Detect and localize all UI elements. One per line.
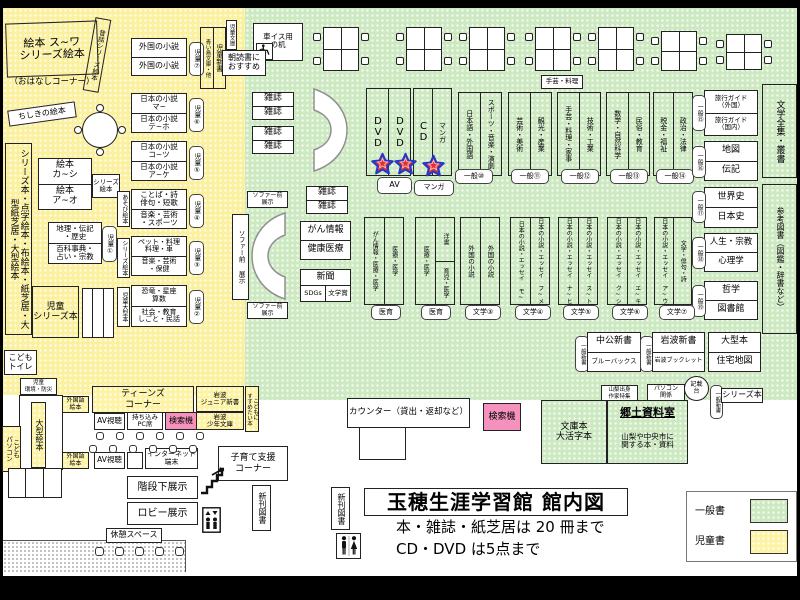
chair [573, 57, 581, 65]
shelf-label: 日本の小説・エッセイ ス~ト [578, 218, 598, 304]
shelf-label: 旅行ガイド （国内） [705, 113, 757, 136]
stool-seat [156, 432, 164, 440]
shelf-kids-japanese-fiction-ma: 日本の小説 マ~ 日本の小説 テ~ホ [131, 93, 187, 133]
shelf-japanese-foreign-language: 日本語・外国語 スポーツ・音楽・演劇 [458, 92, 502, 176]
shelf-badge-av: AV [377, 177, 412, 194]
chair [525, 57, 533, 65]
rule-books: 本・雑誌・紙芝居は 20 冊まで [396, 517, 646, 537]
shelf-label: 日本の小説・エッセイ ナ~ヒ [559, 218, 578, 304]
restroom-icon [336, 533, 361, 559]
chair [636, 33, 644, 41]
morning-reading-recommendation: 朝読書に おすすめ [222, 50, 266, 76]
chair [459, 57, 467, 65]
chair [118, 126, 126, 134]
shelf-label: 洋書 [436, 218, 455, 261]
shelf-badge-ippan-13: 一般⑬ [610, 169, 648, 184]
chair [651, 57, 659, 65]
chair [74, 126, 82, 134]
shelf-label: 健康医療 [301, 240, 350, 259]
chair [525, 33, 533, 41]
stool-seat [136, 432, 144, 440]
stool-seat [116, 432, 124, 440]
shelf-label: 税金・福祉 [654, 93, 673, 175]
chair [444, 33, 452, 41]
shelf-label: 雑誌 [253, 140, 293, 154]
shelf-badge-jido-2: 児童② [189, 290, 204, 324]
shelf-label: スポーツ・音楽・演劇 [480, 93, 502, 175]
shelf-label: 地理・伝記 ・歴史 [49, 223, 101, 243]
shelf-play-picturebooks: あそび絵本 [117, 191, 130, 227]
shelf-japanese-fiction-essay-4: 日本の小説・エッセイ モ~ 日本の小説・エッセイ フ~メ [510, 217, 550, 305]
av-viewing-seat: AV視聴 [94, 413, 125, 430]
writing-desk: 記載 台 [684, 376, 709, 401]
sofa-front-display: ソファー前 展示 [232, 214, 249, 300]
shelf-label: 数学・自然科学 [607, 93, 628, 175]
shelf-kids-pets-cooking: ペット・料理 料理・車 音楽・芸術 ・保健 [131, 236, 187, 276]
room-local-materials: 郷土資料室 山梨や中央市に 関する本・資料 [607, 400, 688, 464]
shelf-kids-dinosaur-society: 恐竜・星座 算数 社会・教育 しごと・民話 [131, 285, 187, 327]
shelf-kids-large-books: 児童大型本 [117, 287, 130, 327]
room-bunko-large-print: 文庫本 大活字本 [541, 400, 607, 464]
shelf-divider [92, 288, 93, 338]
legend-children-swatch [750, 530, 788, 554]
childcare-support-corner: 子育て支援 コーナー [218, 446, 288, 481]
chair [651, 37, 659, 45]
shelf-label: 政治・法律 [673, 93, 693, 175]
service-counter: カウンター（貸出・返却など） [347, 398, 470, 428]
shelf-label: 雑誌 [253, 106, 293, 120]
chair [96, 104, 104, 112]
chair [636, 57, 644, 65]
shelf-kids-foreign-fiction: 外国の小説 外国の小説 [131, 38, 187, 76]
shelf-label: 文学・俳句・詩 [673, 218, 692, 304]
shelf-unit [82, 288, 114, 338]
shelf-label: 恐竜・星座 算数 [132, 286, 186, 306]
shelf-maps-biography: 地図 伝記 [704, 141, 758, 181]
shelf-label: がん情報・医療・医学 [365, 218, 384, 304]
room-title: 郷土資料室 [611, 404, 684, 422]
shelf-series-picturebook-side: シリーズ 絵本 [92, 174, 120, 198]
star-marker-icon [393, 152, 418, 177]
shelf-label: 日本史 [705, 207, 757, 227]
shelf-kids-japanese-fiction-ko: 日本の小説 コ~ツ 日本の小説 ア~ケ [131, 141, 187, 181]
shelf-label: ブルーバックス [588, 352, 640, 372]
shelf-badge-ippan-14: 一般⑭ [656, 169, 694, 184]
shelf-label: 日本の小説 マ~ [132, 94, 186, 113]
stool-seat [149, 445, 157, 453]
chair [699, 37, 707, 45]
shelf-label: 伝記 [705, 161, 757, 181]
search-terminal-teens: 検索機 [165, 412, 197, 430]
shelf-badge-bungaku-3: 文学③ [465, 305, 501, 320]
shelf-japanese-fiction-essay-7: 日本の小説・エッセイ ア~ウ 文学・俳句・詩 [654, 217, 692, 305]
stairs-icon [199, 463, 225, 495]
stool-seat [89, 445, 97, 453]
reading-table [323, 27, 359, 71]
round-table [82, 112, 118, 148]
shelf-label: 外国の小説 [132, 57, 186, 76]
room-description: 山梨や中央市に 関する本・資料 [611, 422, 684, 460]
shelf-newspapers: 新聞 SDGs 文学賞 [300, 269, 351, 302]
shelf-label: 図書館 [705, 300, 757, 319]
chair [588, 33, 596, 41]
rule-av: CD・DVD は5点まで [396, 539, 646, 559]
shelf-picturebooks-ka-shi-a-o: 絵本 カ~シ 絵本 ア~オ [38, 158, 92, 210]
shelf-label: 岩波新書 [653, 333, 704, 352]
stool-seat [189, 445, 197, 453]
shelf-label: 民俗・教育 [628, 93, 650, 175]
shelf-label: 日本の小説・エッセイ フ~メ [530, 218, 550, 304]
shelf-label: 観光・産業 [530, 93, 552, 175]
shelf-label: 医療・医学 [384, 218, 404, 304]
rest-space-seat [155, 547, 164, 556]
shelf-large-books-housing-maps: 大型本 住宅地図 [708, 332, 761, 372]
shelf-badge-jido-3: 児童③ [189, 241, 204, 275]
lobby-display: ロビー展示 [127, 502, 198, 525]
chair [573, 33, 581, 41]
star-marker-icon [370, 152, 395, 177]
shelf-label: 日本の小説 ア~ケ [132, 161, 186, 181]
shelf-badge-ippan-11: 一般⑪ [511, 169, 549, 184]
shelf-label: 雑誌 [307, 200, 347, 214]
shelf-badge-jido-6: 児童⑥ [189, 98, 204, 132]
reading-table [469, 27, 505, 71]
shelf-picturebook-su-wa: 絵本 ス~ワ シリーズ絵本 [5, 20, 99, 77]
shelf-label: 日本の小説 テ~ホ [132, 113, 186, 133]
shelf-iwanami-shonen: 岩波 少年文庫 [196, 412, 244, 430]
shelf-philosophy-library: 哲学 図書館 [704, 281, 758, 320]
shelf-label: 哲学 [705, 282, 757, 300]
shelf-label: 手芸・料理・家事 [558, 93, 579, 175]
stool-seat [129, 445, 137, 453]
shelf-kids-environment-disaster: 児童 環境・防災 [20, 378, 57, 395]
stool-seat [176, 432, 184, 440]
shelf-iwanami-junior: 岩波 ジュニア新書 [196, 386, 244, 412]
chair [313, 57, 321, 65]
rest-space-area [3, 540, 186, 572]
shelf-label: ペット・料理 料理・車 [132, 237, 186, 256]
legend-row-children: 児童書 [695, 530, 788, 554]
shelf-badge-jido-4: 児童④ [189, 194, 204, 228]
shelf-label: 外国の小説 [132, 39, 186, 57]
star-marker-icon [421, 154, 446, 179]
shelf-foreign-fiction: 外国の小説 外国の小説 [460, 217, 500, 305]
sofa-front-display: ソファー前 展示 [247, 302, 288, 319]
shelf-badge-bungaku-7: 文学⑦ [659, 305, 695, 320]
chair [313, 33, 321, 41]
shelf-label: 日本の小説・エッセイ ア~ウ [655, 218, 673, 304]
shelf-travel-guides: 旅行ガイド （外国） 旅行ガイド （国内） [704, 90, 758, 136]
shelf-label: SDGs [301, 286, 325, 301]
reading-table [406, 27, 442, 71]
shelf-label: 日本語・外国語 [459, 93, 480, 175]
service-counter-leg [359, 427, 406, 460]
shelf-medical-childcare: 医療・医学 洋書 育児・医学 [415, 217, 455, 305]
bench-divider [43, 468, 44, 498]
shelf-badge-jido-5: 児童⑤ [189, 146, 204, 180]
shelf-magazines: 雑誌 雑誌 [252, 92, 294, 120]
shelf-label: 日本の小説・エッセイ モ~ [511, 218, 530, 304]
shelf-tax-politics: 税金・福祉 政治・法律 [653, 92, 693, 176]
shelf-art-tourism: 芸術・美術 観光・産業 [508, 92, 552, 176]
chair [396, 33, 404, 41]
shelf-label: 雑誌 [307, 187, 347, 200]
shelf-medical-cancer-info: がん情報・医療・医学 医療・医学 [364, 217, 404, 305]
shelf-label: 新聞 [301, 270, 350, 285]
shelf-series-books: シリーズ本 [721, 388, 763, 403]
chair [507, 33, 515, 41]
chair [507, 57, 515, 65]
chair [699, 57, 707, 65]
shelf-badge-ippan-15: 一般⑮ [692, 95, 706, 131]
shelf-badge-ippan-16: 一般⑯ [692, 146, 706, 178]
shelf-label: がん情報 [301, 222, 350, 240]
shelf-label: 住宅地図 [709, 352, 760, 372]
shelf-cancer-health-info: がん情報 健康医療 [300, 221, 351, 260]
legend-children-label: 児童書 [695, 536, 725, 547]
shelf-label: 音楽・芸術 ・スポーツ [132, 209, 186, 229]
display-handicraft-cooking: 手芸・料理 [541, 75, 583, 89]
bench [8, 468, 62, 498]
chair [396, 57, 404, 65]
shelf-label: 地図 [705, 142, 757, 161]
search-terminal: 検索機 [483, 403, 521, 431]
shelf-label: 中公新書 [588, 333, 640, 352]
shelf-label: 社会・教育 しごと・民話 [132, 306, 186, 327]
new-books-shelf: 新刊図書 [331, 487, 350, 530]
legend-general-swatch [750, 499, 788, 523]
chair [588, 57, 596, 65]
chair [444, 57, 452, 65]
chair [764, 56, 772, 64]
shelf-reference-books: 参考図書（図鑑・辞書など） [762, 184, 797, 334]
shelf-label: 育児・医学 [436, 261, 455, 305]
shelf-badge-iiku: 医育 [371, 305, 401, 320]
shelf-label: 日本の小説・エッセイ エ~キ [627, 218, 647, 304]
shelf-children-bunko: 児童文庫 [226, 20, 237, 50]
shelf-label: 日本の小説 コ~ツ [132, 142, 186, 161]
shelf-chuko-shinsho: 中公新書 ブルーバックス [587, 332, 641, 372]
shelf-japanese-fiction-essay-5: 日本の小説・エッセイ ナ~ヒ 日本の小説・エッセイ ス~ト [558, 217, 598, 305]
chair [716, 56, 724, 64]
shelf-badge-ippan-12: 一般⑫ [561, 169, 599, 184]
shelf-badge-manga: マンガ [414, 180, 454, 196]
shelf-foreign-language-picturebooks: 外国語 絵本 [62, 452, 89, 469]
shelf-badge-bungaku-6: 文学⑥ [612, 305, 648, 320]
shelf-label: ことば・詩 俳句・短歌 [132, 190, 186, 209]
shelf-badge-iiku: 医育 [421, 305, 451, 320]
shelf-recommended-for-kids: こどもに すすめたい本 [245, 386, 259, 432]
shelf-label: 医療・医学 [416, 218, 435, 304]
chair [716, 40, 724, 48]
shelf-children-series: 児童 シリーズ本 [32, 286, 79, 338]
shelf-unit [127, 452, 143, 469]
shelf-label: 外国の小説 [461, 218, 480, 304]
rest-space-seat [175, 547, 184, 556]
rest-space-seat [135, 547, 144, 556]
byod-pc-seat: 持ち込み PC席 [127, 412, 163, 430]
shelf-geography-encyclopedia: 地理・伝記 ・歴史 百科事典・ 占い・宗教 [48, 222, 102, 264]
shelf-series-picturebook-vertical: シリーズ絵本 [117, 238, 130, 278]
kids-computer: こども パソコン [2, 426, 21, 472]
shelf-badge-ippan-17: 一般⑰ [692, 191, 706, 223]
shelf-label: 大型本 [709, 333, 760, 352]
map-title: 玉穂生涯学習館 館内図 [364, 488, 628, 516]
shelf-badge-ippan-10: 一般⑩ [455, 169, 493, 184]
shelf-badge-bungaku-4: 文学④ [515, 305, 551, 320]
bench-divider [25, 468, 26, 498]
map-title-text: 玉穂生涯学習館 館内図 [387, 491, 605, 513]
shelf-math-science-folklore: 数学・自然科学 民俗・教育 [606, 92, 650, 176]
stool-seat [169, 445, 177, 453]
shelf-handicraft-engineering: 手芸・料理・家事 技術・工業 [557, 92, 601, 176]
shelf-magazines: 雑誌 雑誌 [306, 186, 348, 214]
chair [361, 57, 369, 65]
elevator-icon [202, 507, 221, 533]
shelf-badge-ippan-18: 一般⑱ [692, 237, 706, 269]
shelf-label: 百科事典・ 占い・宗教 [49, 243, 101, 264]
shelf-divider [103, 288, 104, 338]
legend: 一般書 児童書 [686, 491, 797, 562]
shelf-magazines: 雑誌 雑誌 [252, 126, 294, 154]
sofa-front-display: ソファー前 展示 [247, 191, 288, 208]
stool-seat [109, 445, 117, 453]
kids-toilet: こども トイレ [4, 350, 37, 375]
shelf-iwanami-shinsho: 岩波新書 岩波ブックレット [652, 332, 705, 372]
crescent-sofa [308, 86, 348, 174]
shelf-badge-jido-1: 児童① [102, 226, 117, 262]
shelf-world-japanese-history: 世界史 日本史 [704, 187, 758, 228]
rest-space-label: 休憩スペース [106, 528, 162, 543]
shelf-label: 音楽・芸術 ・保健 [132, 256, 186, 276]
reading-table [726, 34, 762, 70]
chair [361, 33, 369, 41]
shelf-life-religion-psychology: 人生・宗教 心理学 [704, 233, 758, 272]
reading-table [598, 27, 634, 71]
shelf-label: 旅行ガイド （外国） [705, 91, 757, 113]
chair [459, 33, 467, 41]
rest-space-seat [95, 547, 104, 556]
shelf-label: 雑誌 [253, 93, 293, 106]
shelf-label: 日本の小説・エッセイ ク~シ [608, 218, 627, 304]
stool-seat [96, 432, 104, 440]
shelf-kids-language-arts: ことば・詩 俳句・短歌 音楽・芸術 ・スポーツ [131, 189, 187, 229]
shelf-label: 絵本 カ~シ [39, 159, 91, 184]
rest-space-seat [115, 547, 124, 556]
shelf-label: 文学賞 [325, 286, 350, 301]
shelf-label: 青い鳥文庫・他 [201, 28, 213, 88]
shelf-label: 外国の小説 [480, 218, 500, 304]
new-books-shelf: 新刊図書 [252, 485, 271, 531]
chair [764, 40, 772, 48]
legend-general-label: 一般書 [695, 506, 725, 517]
shelf-badge-bungaku-5: 文学⑤ [563, 305, 599, 320]
shelf-label: 雑誌 [253, 127, 293, 140]
teens-corner: ティーンズ コーナー [92, 386, 194, 413]
shelf-label: 技術・工業 [579, 93, 601, 175]
crescent-sofa [251, 210, 291, 302]
reading-table [661, 31, 697, 71]
library-floor-map: 絵本 ス~ワ シリーズ絵本 （おはなしコーナー） 昔話シリーズ絵本 ちしきの絵本… [0, 0, 800, 600]
shelf-foreign-language-picturebooks: 外国語 絵本 [62, 396, 89, 413]
shelf-label: 世界史 [705, 188, 757, 207]
stool-seat [196, 432, 204, 440]
shelf-label: 人生・宗教 [705, 234, 757, 252]
shelf-series-braille-bigbooks: シリーズ本・点字絵本・布絵本・紙芝居・大型紙芝居・大型絵本 [5, 143, 32, 335]
shelf-literature-collections: 文学全集・叢書 [762, 84, 797, 178]
shelf-label: 芸術・美術 [509, 93, 530, 175]
chair [96, 148, 104, 156]
shelf-label: 心理学 [705, 252, 757, 271]
shelf-japanese-fiction-essay-6: 日本の小説・エッセイ ク~シ 日本の小説・エッセイ エ~キ [607, 217, 647, 305]
shelf-label: 絵本 ア~オ [39, 184, 91, 210]
legend-row-general: 一般書 [695, 499, 788, 523]
reading-table [535, 27, 571, 71]
under-stairs-display: 階段下展示 [127, 476, 198, 499]
shelf-big-picturebooks: 大型絵本 [31, 402, 46, 468]
shelf-label: 岩波ブックレット [653, 352, 704, 372]
av-viewing-seat: AV視聴 [94, 452, 125, 469]
